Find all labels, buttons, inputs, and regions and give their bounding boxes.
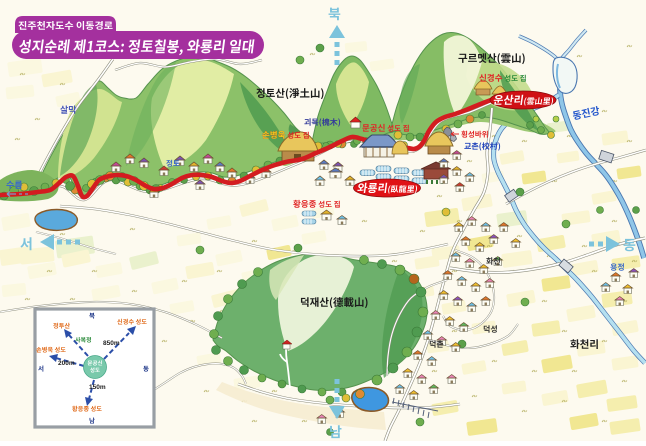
svg-text:200m: 200m: [58, 360, 75, 367]
svg-text:850m: 850m: [103, 340, 120, 347]
svg-text:150m: 150m: [89, 384, 106, 391]
